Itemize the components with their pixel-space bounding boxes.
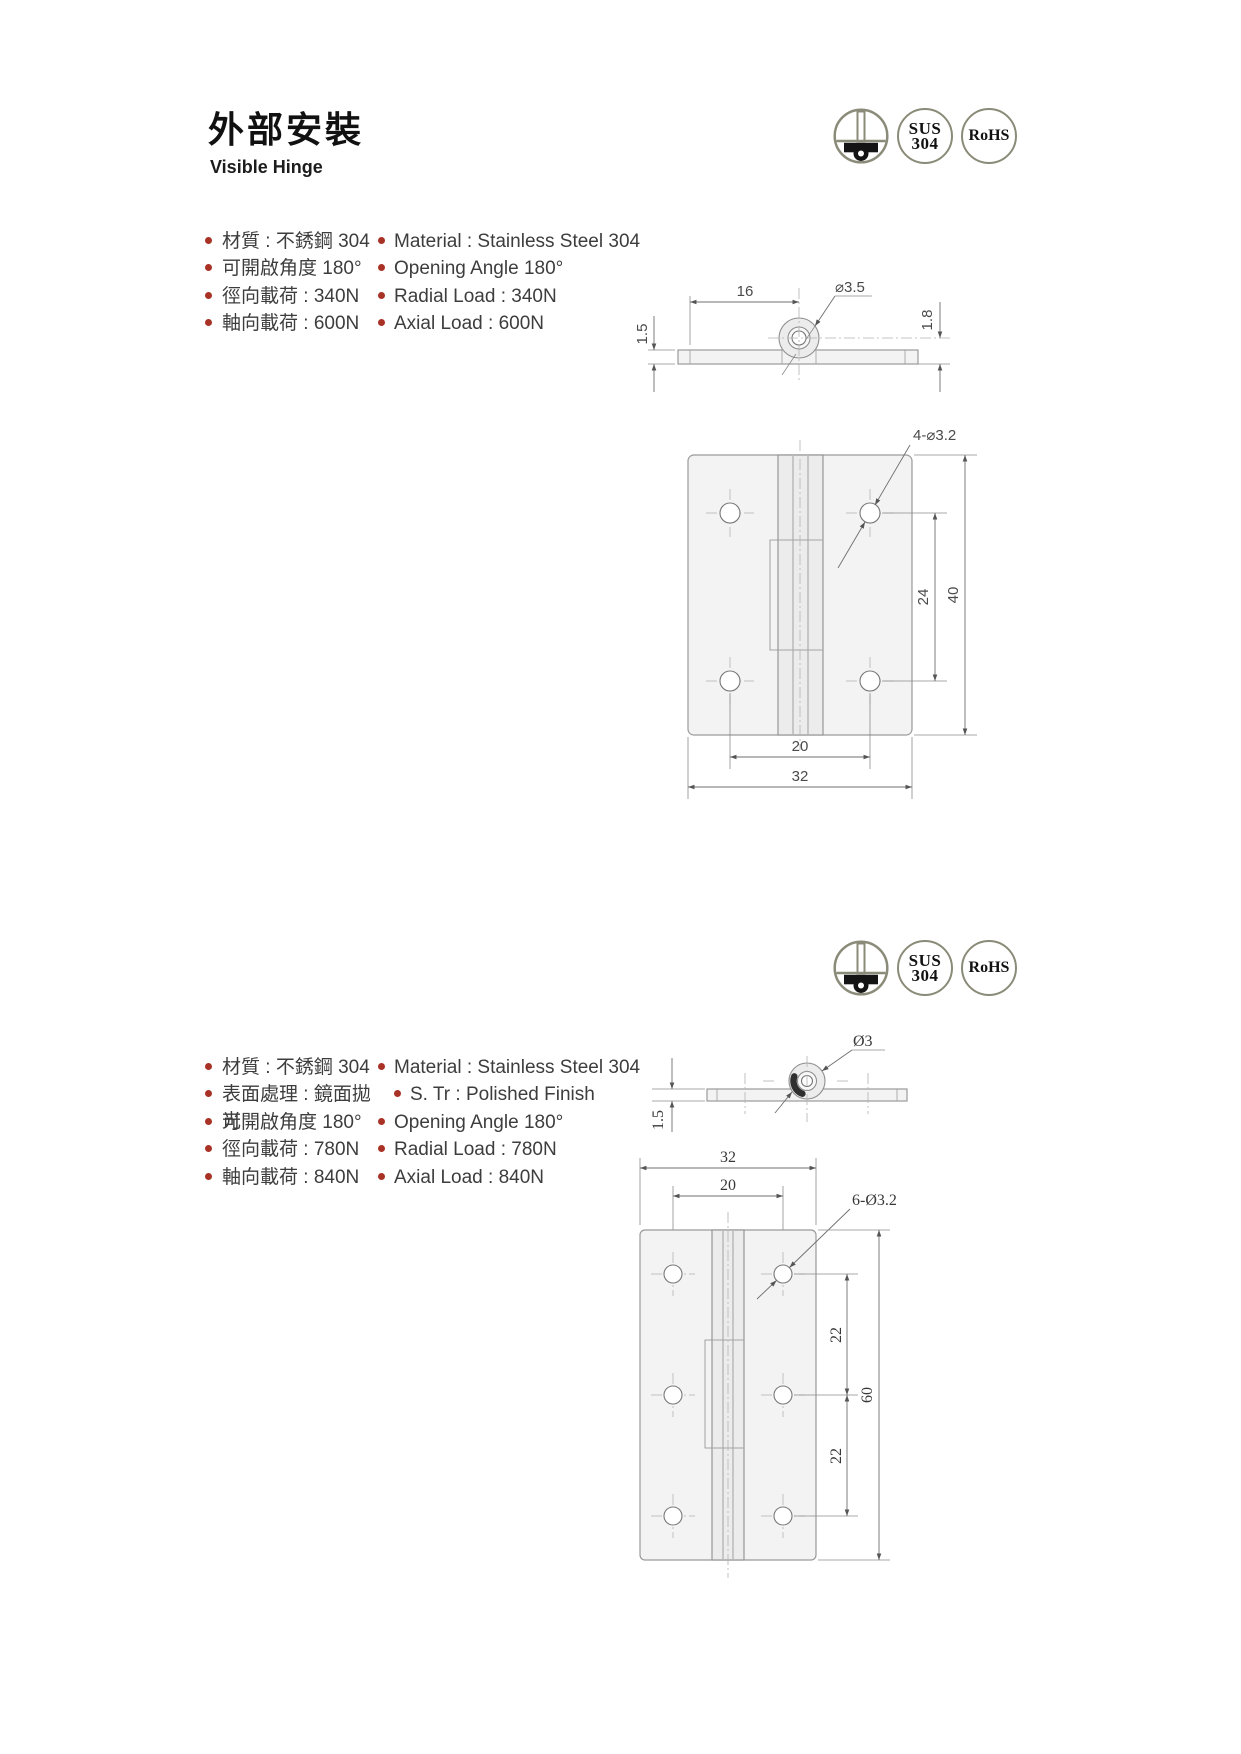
spec-item: 軸向載荷 : 840N Axial Load : 840N	[205, 1162, 640, 1189]
spec-en: Material : Stainless Steel 304	[394, 1057, 640, 1079]
spec-zh: 可開啟角度 180°	[222, 253, 378, 280]
bullet-dot	[205, 1145, 212, 1152]
spec-item: 可開啟角度 180° Opening Angle 180°	[205, 1107, 640, 1134]
bullet-dot	[205, 237, 212, 244]
bullet-dot	[205, 319, 212, 326]
spec-en: Axial Load : 600N	[394, 313, 544, 335]
dim-label-height-60: 60	[859, 1387, 876, 1403]
bullet-dot	[394, 1090, 401, 1097]
spec-zh: 軸向載荷 : 840N	[222, 1162, 378, 1189]
dim-label-thickness-1-5: 1.5	[650, 1110, 667, 1130]
spec-en: Opening Angle 180°	[394, 258, 563, 280]
dim-label-thickness-1-8: 1.8	[919, 310, 936, 331]
spec-zh: 徑向載荷 : 340N	[222, 281, 378, 308]
bullet-dot	[378, 1063, 385, 1070]
bullet-dot	[378, 1145, 385, 1152]
rohs-badge-label: RoHS	[969, 959, 1010, 977]
dim-label-width-32: 32	[720, 1149, 736, 1166]
hinge1-profile-dim-left-thickness: 1.5	[634, 316, 675, 392]
certification-badges-2: SUS 304 RoHS	[833, 940, 1017, 996]
sus304-badge-line2: 304	[912, 968, 939, 983]
dim-label-width16: 16	[737, 283, 754, 300]
dim-label-width-32: 32	[792, 768, 809, 785]
bullet-dot	[378, 319, 385, 326]
hinge1-front-body	[688, 440, 912, 750]
surface-mount-icon-art	[833, 108, 889, 164]
dim-label-holes-4: 4-⌀3.2	[913, 427, 956, 444]
spec-zh: 軸向載荷 : 600N	[222, 308, 378, 335]
bullet-dot	[378, 237, 385, 244]
spec-item: 材質 : 不銹鋼 304 Material : Stainless Steel …	[205, 1052, 640, 1079]
spec-en: S. Tr : Polished Finish	[410, 1084, 595, 1106]
hinge1-profile-body	[678, 318, 918, 364]
hinge1-profile-drawing: 16 ⌀3.5 1.5 1.8	[560, 245, 980, 395]
hinge2-front-drawing: 32 20	[600, 1148, 1020, 1588]
spec-en: Radial Load : 780N	[394, 1139, 557, 1161]
dim-label-span-22-bottom: 22	[828, 1448, 845, 1464]
bullet-dot	[378, 1118, 385, 1125]
dim-label-pin-diameter: ⌀3.5	[835, 279, 865, 296]
hinge2-profile-drawing: Ø3 1.5	[610, 1022, 1000, 1142]
dim-label-hole-span-24: 24	[915, 589, 932, 606]
dim-label-span-22-top: 22	[828, 1327, 845, 1343]
sus304-badge: SUS 304	[897, 940, 953, 996]
spec-zh: 材質 : 不銹鋼 304	[222, 226, 378, 253]
spec-en: Axial Load : 840N	[394, 1167, 544, 1189]
dim-label-pin-diameter-3: Ø3	[853, 1033, 873, 1050]
sus304-badge: SUS 304	[897, 108, 953, 164]
spec-zh: 可開啟角度 180°	[222, 1107, 378, 1134]
dim-label-thickness-1-5: 1.5	[634, 324, 651, 345]
surface-mount-icon-art	[833, 940, 889, 996]
bullet-dot	[378, 1173, 385, 1180]
bullet-dot	[205, 1173, 212, 1180]
spec-list-2: 材質 : 不銹鋼 304 Material : Stainless Steel …	[205, 1052, 640, 1189]
surface-mount-icon	[833, 108, 889, 164]
hinge1-profile-dim-right-thickness: 1.8	[918, 302, 950, 392]
rohs-badge-label: RoHS	[969, 127, 1010, 145]
hinge2-profile-dim-thickness: 1.5	[650, 1058, 705, 1132]
sus304-badge-line2: 304	[912, 136, 939, 151]
bullet-dot	[205, 1118, 212, 1125]
bullet-dot	[205, 1090, 212, 1097]
dim-label-hole-span-20: 20	[720, 1177, 736, 1194]
spec-item: 徑向載荷 : 780N Radial Load : 780N	[205, 1134, 640, 1161]
page-title: 外部安裝	[208, 112, 364, 148]
page-title-block: 外部安裝 Visible Hinge	[208, 112, 364, 176]
dim-label-hole-span-20: 20	[792, 738, 809, 755]
datasheet-page: 外部安裝 Visible Hinge SUS 304 RoHS 材質 : 不銹鋼…	[0, 0, 1241, 1754]
bullet-dot	[378, 292, 385, 299]
rohs-badge: RoHS	[961, 940, 1017, 996]
rohs-badge: RoHS	[961, 108, 1017, 164]
dim-label-holes-6: 6-Ø3.2	[852, 1192, 897, 1209]
spec-en: Radial Load : 340N	[394, 286, 557, 308]
spec-zh: 材質 : 不銹鋼 304	[222, 1052, 378, 1079]
bullet-dot	[205, 1063, 212, 1070]
spec-zh: 徑向載荷 : 780N	[222, 1134, 378, 1161]
hinge1-front-drawing: 4-⌀3.2 24 40 20 32	[600, 385, 1000, 805]
bullet-dot	[205, 264, 212, 271]
bullet-dot	[378, 264, 385, 271]
surface-mount-icon	[833, 940, 889, 996]
dim-label-height-40: 40	[945, 587, 962, 604]
spec-item: 表面處理 : 鏡面拋光 S. Tr : Polished Finish	[205, 1079, 640, 1106]
bullet-dot	[205, 292, 212, 299]
spec-en: Opening Angle 180°	[394, 1112, 563, 1134]
certification-badges-1: SUS 304 RoHS	[833, 108, 1017, 164]
page-subtitle: Visible Hinge	[210, 158, 364, 176]
